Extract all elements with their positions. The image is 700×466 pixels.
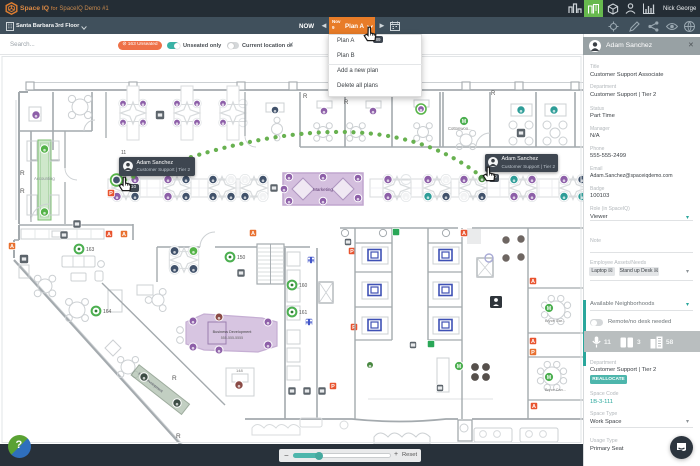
svg-text:M: M (547, 375, 551, 381)
svg-text:A: A (531, 279, 535, 285)
svg-text:A: A (107, 232, 111, 238)
svg-text:A: A (251, 231, 255, 237)
svg-text:Accounting: Accounting (34, 176, 55, 181)
svg-text:555-555-5555: 555-555-5555 (221, 336, 243, 340)
svg-text:A: A (462, 231, 466, 237)
svg-text:P: P (109, 191, 113, 197)
svg-text:M: M (462, 119, 466, 125)
svg-text:Cottonwoo...: Cottonwoo... (448, 126, 472, 131)
svg-text:160: 160 (299, 283, 308, 289)
svg-text:R: R (491, 91, 496, 97)
svg-text:Bryce Can...: Bryce Can... (545, 388, 566, 392)
svg-text:163: 163 (86, 247, 95, 253)
svg-text:A: A (532, 404, 536, 410)
svg-text:P: P (331, 384, 335, 390)
svg-text:R: R (20, 170, 25, 177)
svg-text:148: 148 (236, 368, 243, 373)
svg-text:A: A (122, 232, 126, 238)
svg-text:150: 150 (237, 255, 246, 261)
svg-text:P: P (531, 350, 535, 356)
svg-text:Business Development: Business Development (213, 330, 253, 334)
svg-text:161: 161 (299, 310, 308, 316)
svg-text:R: R (20, 188, 25, 195)
svg-text:A: A (10, 244, 14, 250)
svg-text:A: A (531, 339, 535, 345)
svg-text:164: 164 (103, 309, 112, 315)
svg-text:M: M (457, 364, 461, 370)
svg-text:R: R (344, 100, 349, 106)
svg-text:Bryce Gar...: Bryce Gar... (545, 319, 565, 323)
svg-text:R: R (176, 433, 181, 440)
svg-text:P: P (350, 249, 354, 255)
svg-text:Marketing: Marketing (313, 187, 333, 192)
svg-text:R: R (303, 94, 308, 100)
svg-text:R: R (172, 375, 177, 382)
svg-text:M: M (547, 306, 551, 312)
